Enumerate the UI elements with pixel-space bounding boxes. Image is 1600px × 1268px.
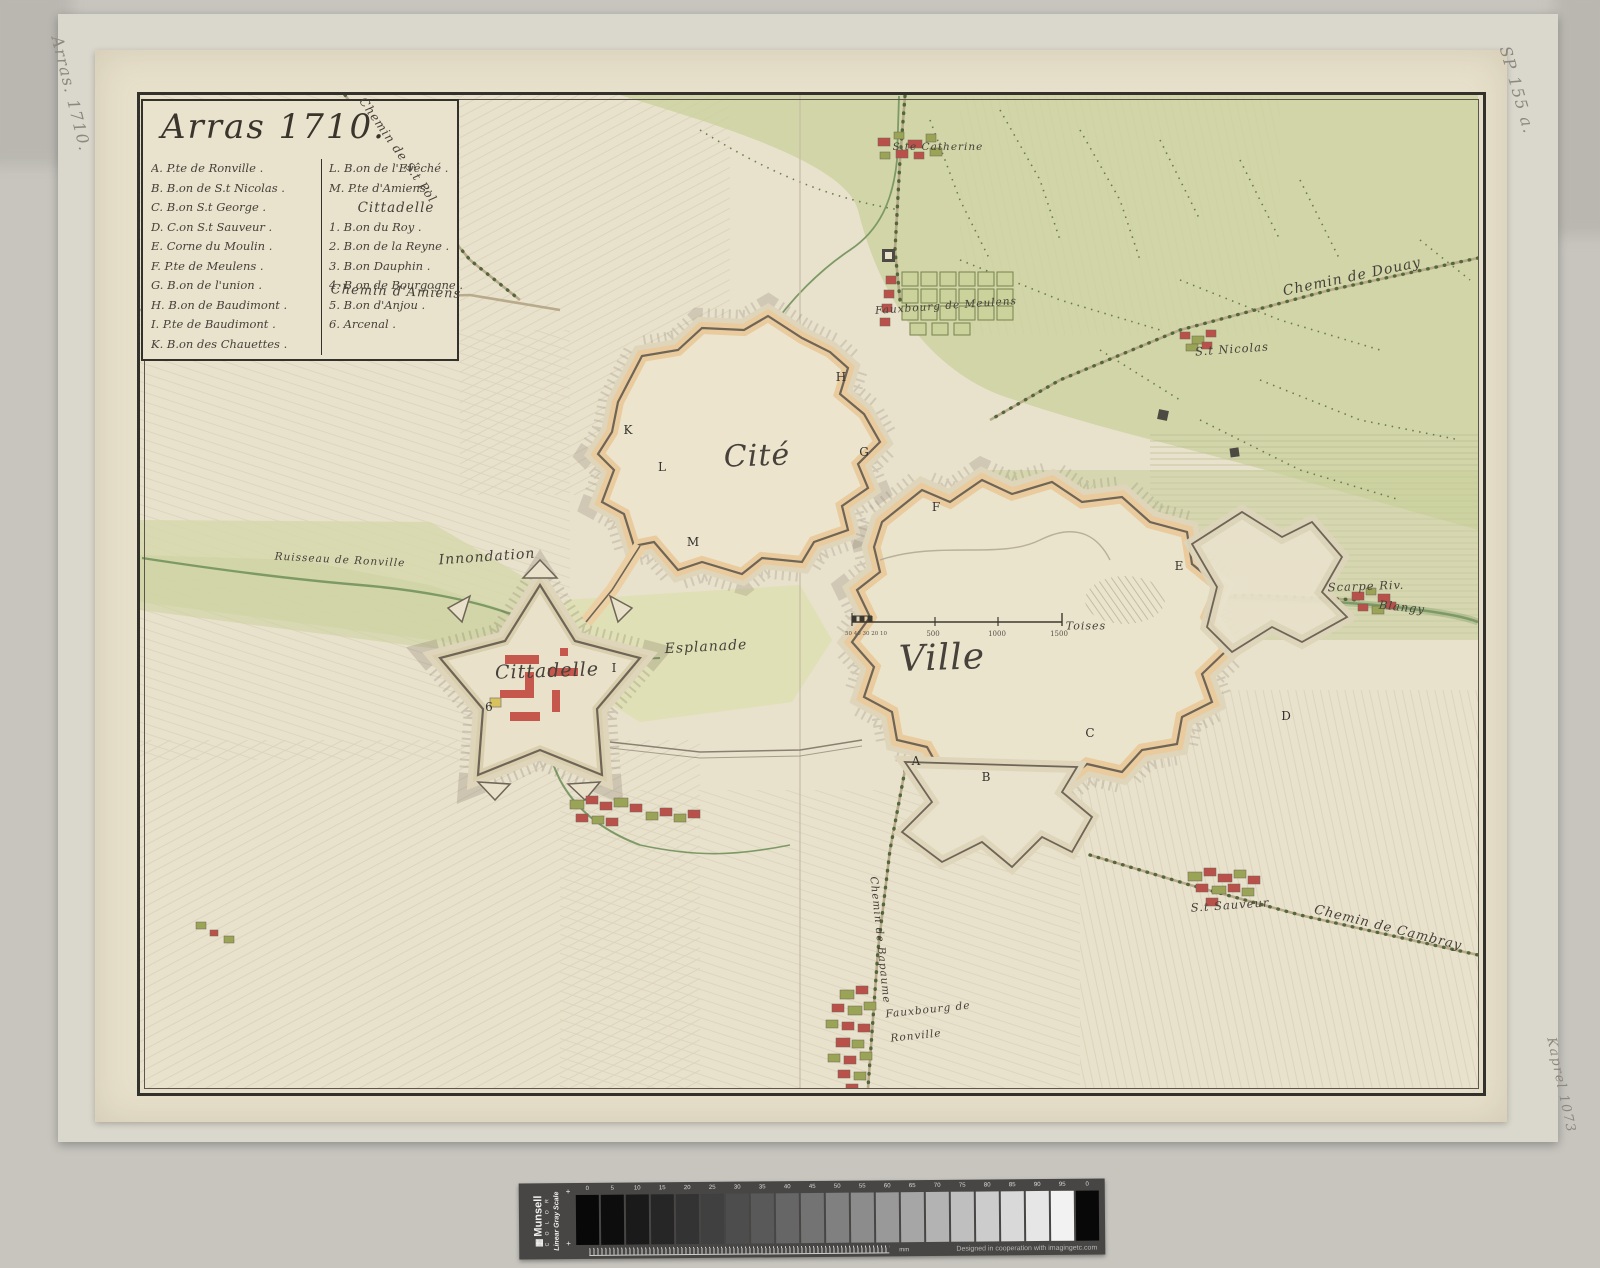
legend-entry: L. B.on de l'Evêché . [329,161,463,181]
patch-value: 75 [951,1183,974,1192]
patch-value: 45 [801,1184,824,1193]
gray-patch [601,1195,624,1245]
gray-patch [976,1191,999,1241]
legend-entry: 2. B.on de la Reyne . [329,239,463,259]
legend-entry: C. B.on S.t George . [151,200,321,220]
gray-patch [676,1194,699,1244]
patch-value: 25 [701,1185,724,1194]
gray-patch [751,1193,774,1243]
patch-value: 55 [851,1183,874,1192]
legend-entry: 5. B.on d'Anjou . [329,298,463,318]
legend-citadel-header: Cittadelle [329,200,463,220]
gray-patch [851,1192,874,1242]
munsell-gray-scale-card: ▦Munsell C O L O R Linear Gray Scale + +… [519,1178,1106,1259]
patch-value: 5 [601,1186,624,1195]
munsell-color-text: C O L O R [544,1185,551,1257]
gray-step-15: 15 [651,1185,675,1244]
patch-value: 95 [1051,1182,1074,1191]
gray-step-95: 95 [1051,1182,1075,1241]
munsell-logo: ▦Munsell C O L O R Linear Gray Scale [533,1185,561,1257]
patch-value: 85 [1001,1182,1024,1191]
patch-value: 90 [1026,1182,1049,1191]
gray-step-0: 0 [576,1186,600,1245]
gray-step-70: 70 [926,1183,950,1242]
legend-entry: K. B.on des Chauettes . [151,337,321,357]
registration-mark: + [566,1239,571,1248]
legend-column-left: A. P.te de Ronville .B. B.on de S.t Nico… [143,159,321,355]
gray-patch [626,1194,649,1244]
gray-step-10: 10 [626,1185,650,1244]
gray-patch [901,1192,924,1242]
munsell-scale-name: Linear Gray Scale [553,1185,561,1257]
legend-entry: E. Corne du Moulin . [151,239,321,259]
gray-step-65: 65 [901,1183,925,1242]
gray-patch [776,1193,799,1243]
patch-value: 80 [976,1182,999,1191]
legend-entry: M. P.te d'Amiens . [329,181,463,201]
legend-entry: H. B.on de Baudimont . [151,298,321,318]
legend-column-right: L. B.on de l'Evêché .M. P.te d'Amiens . … [321,159,463,355]
registration-mark: + [566,1187,571,1196]
title-cartouche: Arras 1710. A. P.te de Ronville .B. B.on… [141,99,459,361]
mm-ruler [589,1245,889,1256]
gray-patch [1051,1191,1074,1241]
gray-patch [826,1193,849,1243]
munsell-brand-text: Munsell [532,1196,544,1237]
gray-patch [1076,1190,1099,1240]
gray-patch [651,1194,674,1244]
gray-step-40: 40 [776,1184,800,1243]
gray-patch [951,1192,974,1242]
patch-value: 15 [651,1185,674,1194]
gray-patch [1001,1191,1024,1241]
legend-entry: 6. Arcenal . [329,317,463,337]
gray-patches: 051015202530354045505560657075808590950 [576,1181,1099,1245]
gray-step-50: 50 [826,1184,850,1243]
munsell-grid-icon: ▦ [534,1239,544,1248]
legend-entry: B. B.on de S.t Nicolas . [151,181,321,201]
gray-patch [576,1195,599,1245]
gray-patch [726,1194,749,1244]
patch-value: 0 [576,1186,599,1195]
gray-patch [876,1192,899,1242]
legend-entry: I. P.te de Baudimont . [151,317,321,337]
patch-value: 35 [751,1184,774,1193]
patch-value: 10 [626,1185,649,1194]
legend-entry: G. B.on de l'union . [151,278,321,298]
gray-patch [1026,1191,1049,1241]
gray-step-75: 75 [951,1183,975,1242]
gray-step-85: 85 [1001,1182,1025,1241]
credit-text: Designed in cooperation with imagingetc.… [956,1245,1097,1253]
patch-value: 0 [1076,1181,1099,1190]
gray-step-25: 25 [701,1185,725,1244]
scan-shadow-top-right [1554,0,1600,236]
gray-step-80: 80 [976,1182,1000,1241]
gray-step-30: 30 [726,1185,750,1244]
patch-value: 70 [926,1183,949,1192]
mm-label: mm [899,1247,909,1253]
gray-patch [926,1192,949,1242]
gray-step-35: 35 [751,1184,775,1243]
gray-patch [701,1194,724,1244]
gray-step-5: 5 [601,1186,625,1245]
legend-entry: A. P.te de Ronville . [151,161,321,181]
patch-value: 40 [776,1184,799,1193]
legend-entry: 1. B.on du Roy . [329,220,463,240]
legend: A. P.te de Ronville .B. B.on de S.t Nico… [143,159,457,355]
legend-entry: D. C.on S.t Sauveur . [151,220,321,240]
gray-step-60: 60 [876,1183,900,1242]
gray-step-end: 0 [1076,1181,1100,1240]
patch-value: 65 [901,1183,924,1192]
gray-step-55: 55 [851,1183,875,1242]
legend-entry: 4. B.on de Bourgogne . [329,278,463,298]
patch-value: 30 [726,1185,749,1194]
gray-step-45: 45 [801,1184,825,1243]
legend-entry: F. P.te de Meulens . [151,259,321,279]
patch-value: 60 [876,1183,899,1192]
legend-entry: 3. B.on Dauphin . [329,259,463,279]
gray-step-90: 90 [1026,1182,1050,1241]
gray-patch [801,1193,824,1243]
gray-step-20: 20 [676,1185,700,1244]
map-title: Arras 1710. [143,101,457,153]
patch-value: 20 [676,1185,699,1194]
patch-value: 50 [826,1184,849,1193]
